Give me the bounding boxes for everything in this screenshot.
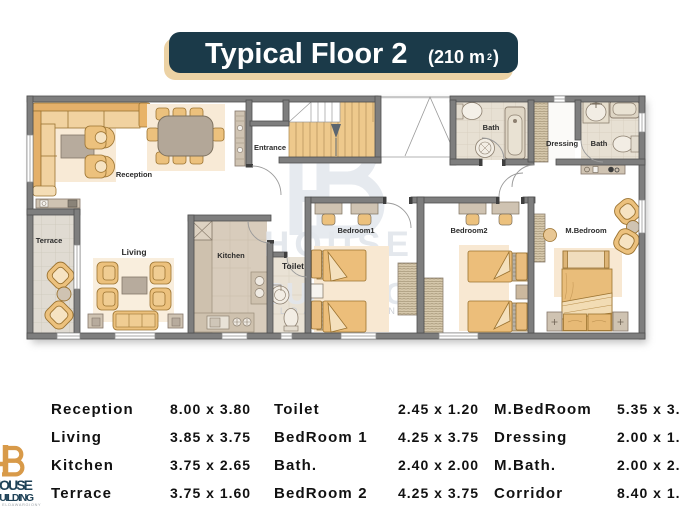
svg-text:Terrace: Terrace bbox=[51, 485, 112, 502]
svg-text:Bath.: Bath. bbox=[274, 457, 317, 474]
svg-text:3.75 x 1.60: 3.75 x 1.60 bbox=[170, 485, 251, 501]
svg-text:M.Bedroom: M.Bedroom bbox=[565, 226, 607, 235]
svg-text:M.Bath.: M.Bath. bbox=[494, 457, 556, 474]
svg-text:4.25 x 3.75: 4.25 x 3.75 bbox=[398, 429, 479, 445]
svg-text:): ) bbox=[493, 47, 499, 67]
svg-text:Kitchen: Kitchen bbox=[51, 457, 114, 474]
svg-text:8.40 x 1.15: 8.40 x 1.15 bbox=[617, 485, 680, 501]
svg-text:2.40 x 2.00: 2.40 x 2.00 bbox=[398, 457, 479, 473]
svg-text:3.85 x 3.75: 3.85 x 3.75 bbox=[170, 429, 251, 445]
svg-text:Typical Floor 2: Typical Floor 2 bbox=[205, 38, 408, 70]
svg-text:BedRoom 2: BedRoom 2 bbox=[274, 485, 368, 502]
svg-text:Living: Living bbox=[121, 247, 146, 257]
svg-text:Dressing: Dressing bbox=[546, 139, 579, 148]
svg-text:5.35 x 3.75: 5.35 x 3.75 bbox=[617, 401, 680, 417]
svg-text:Entrance: Entrance bbox=[254, 143, 286, 152]
svg-text:Bath: Bath bbox=[591, 139, 608, 148]
svg-text:Kitchen: Kitchen bbox=[217, 251, 245, 260]
svg-text:2.45 x 1.20: 2.45 x 1.20 bbox=[398, 401, 479, 417]
svg-text:Corridor: Corridor bbox=[494, 485, 563, 502]
svg-text:Bath: Bath bbox=[483, 123, 500, 132]
svg-text:4.25 x 3.75: 4.25 x 3.75 bbox=[398, 485, 479, 501]
svg-text:BedRoom 1: BedRoom 1 bbox=[274, 429, 368, 446]
svg-text:2.00 x 1.55: 2.00 x 1.55 bbox=[617, 429, 680, 445]
svg-text:M.BedRoom: M.BedRoom bbox=[494, 401, 592, 418]
svg-text:Bedroom2: Bedroom2 bbox=[450, 226, 487, 235]
svg-text:Dressing: Dressing bbox=[494, 429, 567, 446]
svg-text:Reception: Reception bbox=[51, 401, 134, 418]
svg-text:Toilet: Toilet bbox=[282, 261, 304, 271]
svg-text:(210 m: (210 m bbox=[428, 47, 485, 67]
svg-text:Terrace: Terrace bbox=[36, 236, 63, 245]
svg-text:Living: Living bbox=[51, 429, 102, 446]
svg-text:2: 2 bbox=[487, 52, 492, 62]
svg-text:Bedroom1: Bedroom1 bbox=[337, 226, 374, 235]
svg-text:3.75 x 2.65: 3.75 x 2.65 bbox=[170, 457, 251, 473]
svg-text:8.00 x 3.80: 8.00 x 3.80 bbox=[170, 401, 251, 417]
svg-text:Reception: Reception bbox=[116, 170, 153, 179]
svg-text:2.00 x 2.00: 2.00 x 2.00 bbox=[617, 457, 680, 473]
svg-text:BY ELDAWARGIONY: BY ELDAWARGIONY bbox=[0, 503, 41, 507]
svg-text:Toilet: Toilet bbox=[274, 401, 320, 418]
svg-text:HOUSE: HOUSE bbox=[0, 477, 33, 493]
